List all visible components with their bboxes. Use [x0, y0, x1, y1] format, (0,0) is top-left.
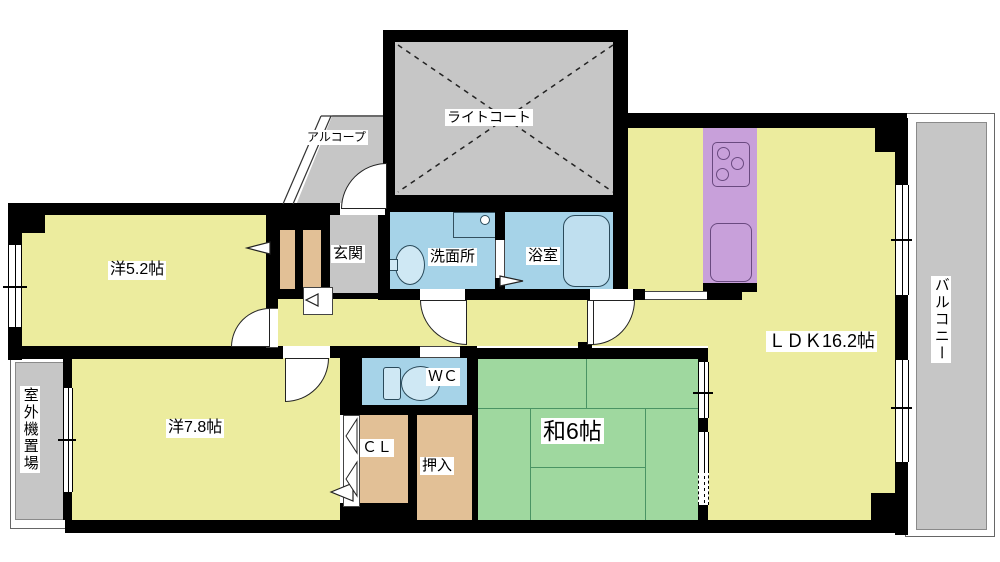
- wall: [330, 346, 420, 358]
- burner-icon: [717, 147, 730, 160]
- door-opening-ldk: [590, 289, 633, 300]
- wall: [703, 283, 757, 292]
- tatami-line: [530, 408, 531, 520]
- tatami-line: [530, 467, 645, 468]
- window-tick: [3, 286, 27, 288]
- wall: [340, 358, 362, 405]
- wall: [895, 295, 908, 360]
- label-wc: ＷＣ: [426, 368, 460, 386]
- wall: [65, 520, 908, 533]
- label-oshiire: 押入: [420, 457, 454, 475]
- open-threshold: [645, 291, 707, 300]
- door-opening-washroom: [420, 289, 465, 300]
- label-balcony: バルコニー: [931, 276, 951, 363]
- door-leaf: [587, 300, 594, 345]
- label-closet: ＣＬ: [360, 439, 394, 457]
- hallway-floor: [278, 298, 708, 346]
- label-ldk: ＬＤＫ16.2帖: [766, 331, 877, 352]
- wall: [477, 348, 708, 359]
- burner-icon: [716, 168, 729, 181]
- window-tick: [58, 439, 76, 441]
- entrance-step: [303, 287, 333, 315]
- tatami-line: [645, 408, 646, 520]
- wall: [63, 358, 72, 388]
- wall: [465, 289, 590, 300]
- wall: [330, 293, 378, 299]
- wall: [63, 492, 72, 520]
- wall: [378, 289, 388, 300]
- kitchen-floor: [628, 128, 708, 300]
- shoe-cabinet: [280, 230, 295, 289]
- label-west78: 洋7.8帖: [166, 419, 224, 438]
- window-tick: [693, 392, 713, 394]
- wall: [698, 505, 708, 533]
- label-light-court: ライトコート: [445, 109, 533, 126]
- wall: [472, 413, 478, 520]
- label-alcove: アルコープ: [305, 130, 368, 145]
- bathtub-icon: [563, 215, 610, 287]
- wall: [620, 113, 907, 128]
- door-opening-wc: [420, 346, 460, 358]
- label-bathroom: 浴室: [526, 247, 560, 265]
- tatami-line: [477, 408, 698, 409]
- closet-floor: [358, 415, 408, 503]
- window: [895, 360, 909, 462]
- shoe-cabinet: [303, 230, 321, 289]
- wall: [408, 415, 417, 520]
- room-west52-floor: [22, 215, 266, 348]
- wall: [613, 30, 628, 300]
- washing-machine-pan-icon: [453, 212, 498, 238]
- wall: [383, 30, 628, 42]
- wall: [698, 348, 708, 362]
- floor-plan: ライトコート アルコープ 洋5.2帖 玄関 洗面所 浴室 ＬＤＫ16.2帖 バル…: [0, 0, 1000, 562]
- wall: [895, 118, 908, 185]
- wall: [8, 215, 22, 245]
- wall: [8, 203, 340, 215]
- toilet-tank-icon: [383, 367, 401, 400]
- window-tick: [891, 239, 912, 241]
- door-opening-bath: [495, 240, 505, 278]
- label-west52: 洋5.2帖: [108, 261, 166, 280]
- burner-icon: [731, 157, 744, 170]
- wall: [8, 346, 283, 359]
- wall: [388, 289, 420, 300]
- window-tick: [891, 407, 912, 409]
- kitchen-sink-icon: [710, 223, 752, 282]
- door-opening-west78: [283, 346, 330, 358]
- window: [698, 432, 709, 470]
- wall: [340, 405, 477, 415]
- label-japanese6: 和6帖: [541, 418, 604, 444]
- closet-folding-door: [343, 415, 360, 507]
- label-entrance: 玄関: [331, 245, 365, 263]
- wall: [698, 418, 708, 432]
- wall: [266, 215, 278, 308]
- tap-circle-icon: [480, 215, 490, 225]
- balcony-floor: [916, 122, 987, 530]
- label-washroom: 洗面所: [428, 248, 477, 266]
- wall: [495, 212, 505, 240]
- wall: [707, 291, 742, 300]
- washbasin-icon: [395, 245, 425, 285]
- wall: [378, 212, 390, 292]
- window: [698, 362, 709, 418]
- sliding-fusuma-door: [698, 470, 709, 505]
- tatami-line: [586, 352, 587, 408]
- label-outdoor-unit: 室外機置場: [20, 386, 40, 473]
- wall: [383, 195, 616, 212]
